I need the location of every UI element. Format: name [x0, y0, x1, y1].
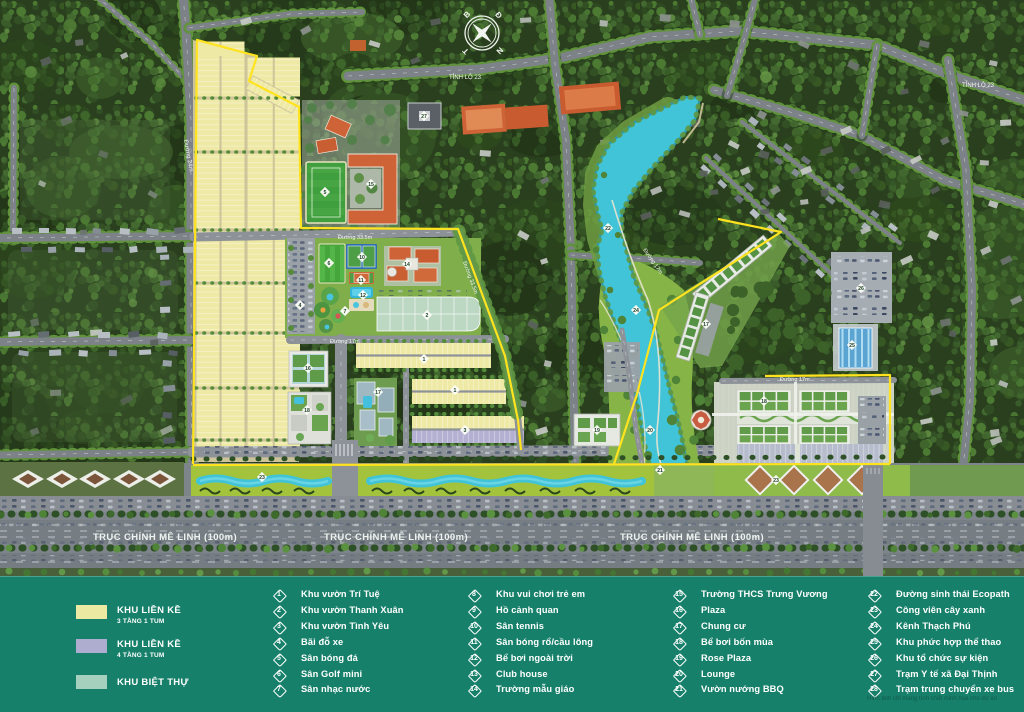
svg-text:11: 11 — [358, 278, 364, 284]
svg-text:4: 4 — [299, 303, 302, 309]
svg-text:20: 20 — [647, 428, 653, 434]
svg-text:TỈNH LỘ 23: TỈNH LỘ 23 — [962, 82, 995, 89]
svg-text:15: 15 — [368, 182, 374, 188]
svg-text:Đường 33.5m: Đường 33.5m — [338, 235, 373, 241]
svg-text:2: 2 — [426, 313, 429, 319]
svg-text:17: 17 — [703, 322, 709, 328]
svg-text:10: 10 — [359, 255, 365, 261]
svg-text:18: 18 — [761, 399, 767, 405]
svg-text:Đường 17m: Đường 17m — [330, 339, 360, 345]
svg-text:26: 26 — [858, 286, 864, 292]
svg-text:3: 3 — [464, 428, 467, 434]
svg-text:1: 1 — [454, 388, 457, 394]
svg-text:24: 24 — [633, 308, 639, 314]
svg-text:12: 12 — [360, 293, 366, 299]
svg-text:14: 14 — [404, 262, 410, 268]
svg-text:18: 18 — [304, 408, 310, 414]
svg-text:23: 23 — [259, 475, 265, 481]
svg-text:TRỤC CHÍNH MÊ LINH (100m): TRỤC CHÍNH MÊ LINH (100m) — [324, 531, 468, 543]
svg-text:Đường 17m: Đường 17m — [780, 377, 810, 383]
svg-text:6: 6 — [328, 261, 331, 267]
svg-text:TỈNH LỘ 23: TỈNH LỘ 23 — [449, 74, 482, 81]
svg-text:16: 16 — [305, 366, 311, 372]
svg-text:1: 1 — [423, 357, 426, 363]
svg-text:19: 19 — [594, 428, 600, 434]
svg-text:25: 25 — [849, 343, 855, 349]
svg-text:27: 27 — [421, 114, 427, 120]
svg-text:5: 5 — [324, 190, 327, 196]
svg-text:TRỤC CHÍNH MÊ LINH (100m): TRỤC CHÍNH MÊ LINH (100m) — [93, 531, 237, 543]
svg-text:22: 22 — [605, 226, 611, 232]
svg-text:TRỤC CHÍNH MÊ LINH (100m): TRỤC CHÍNH MÊ LINH (100m) — [620, 531, 764, 543]
svg-text:17: 17 — [375, 390, 381, 396]
svg-text:23: 23 — [773, 478, 779, 484]
svg-text:21: 21 — [657, 468, 663, 474]
svg-text:7: 7 — [344, 309, 347, 315]
